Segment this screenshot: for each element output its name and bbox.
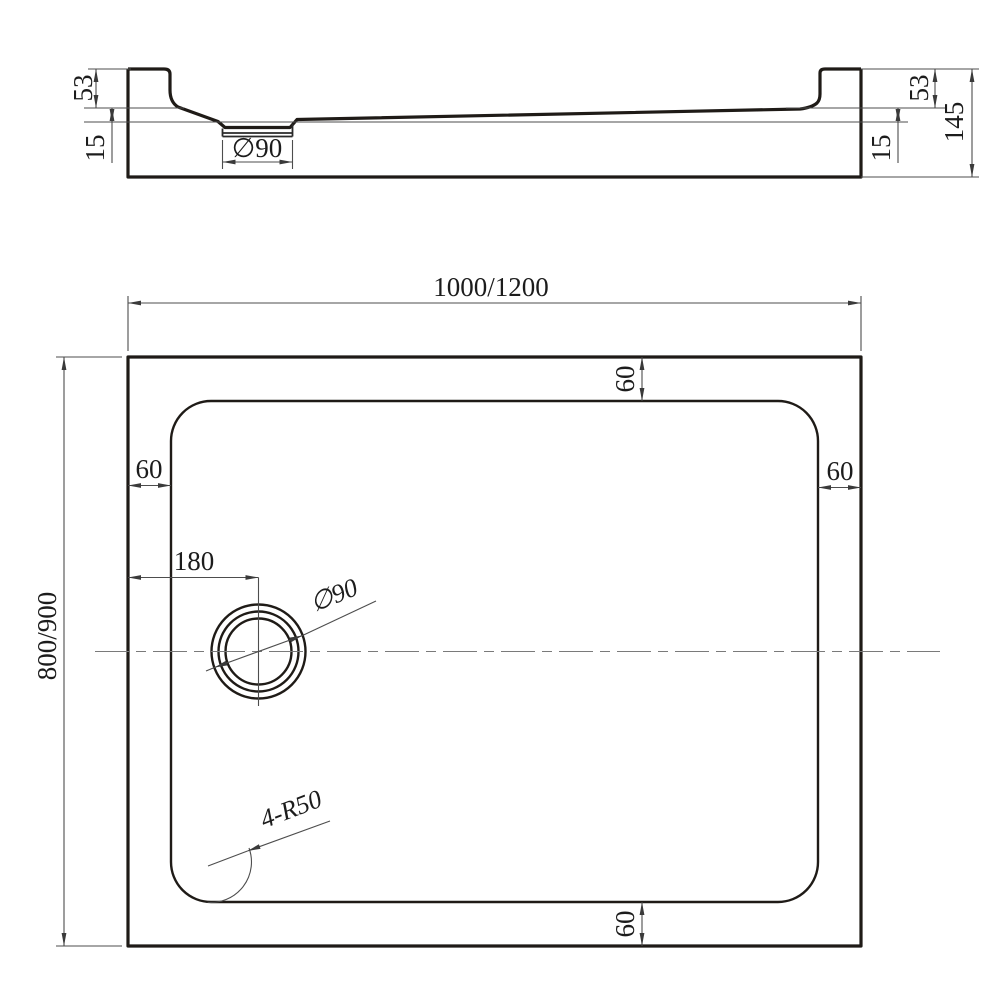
- section-dim-left-base-thickness: 15: [80, 135, 110, 162]
- plan-corner-radius-leader: [248, 821, 331, 851]
- section-dim-drain-diameter: ∅90: [232, 133, 283, 163]
- section-view: 53 15 ∅90 53 15 145: [68, 69, 979, 177]
- plan-dim-overall-depth: 800/900: [32, 592, 62, 681]
- plan-dim-inset-left: 60: [136, 454, 163, 484]
- section-dim-right-rim-height: 53: [904, 75, 934, 102]
- plan-dim-inset-bottom: 60: [610, 911, 640, 938]
- section-dim-right-base-thickness: 15: [866, 135, 896, 162]
- plan-dim-inset-top: 60: [610, 366, 640, 393]
- section-dim-left-rim-height: 53: [68, 75, 98, 102]
- drawing-canvas: 53 15 ∅90 53 15 145 1000/1200 800/900 60: [0, 0, 1000, 1000]
- plan-dim-drain-offset: 180: [174, 546, 215, 576]
- plan-view: 1000/1200 800/900 60 60 60 60 180 ∅90 4-…: [32, 272, 940, 946]
- plan-corner-radius-leader-tail: [208, 851, 248, 866]
- section-left-rim-profile: [128, 69, 861, 128]
- plan-dim-inset-right: 60: [827, 456, 854, 486]
- plan-dim-overall-width: 1000/1200: [433, 272, 549, 302]
- technical-drawing: 53 15 ∅90 53 15 145 1000/1200 800/900 60: [0, 0, 1000, 1000]
- plan-drain-diameter-leader-tail-left: [206, 668, 215, 672]
- section-dim-overall-height: 145: [939, 102, 969, 143]
- plan-dim-drain-diameter: ∅90: [306, 573, 362, 618]
- plan-corner-radius-arc: [208, 848, 252, 902]
